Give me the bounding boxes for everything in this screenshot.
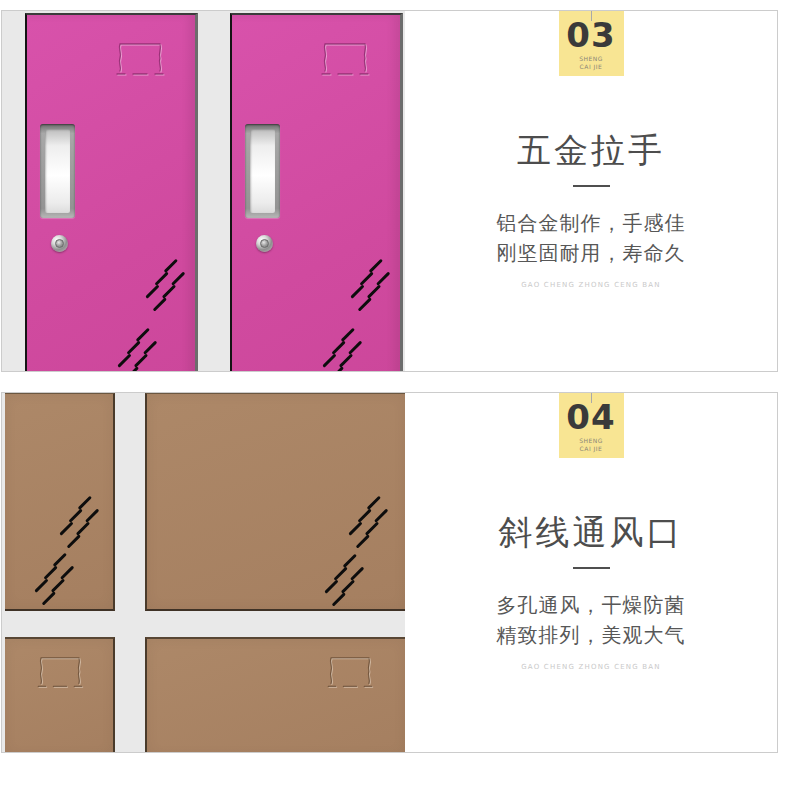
handle-inner-panel [250,129,275,213]
badge-number: 03 [566,18,615,52]
badge-hanger-line [591,11,592,21]
product-detail-page: 03 SHENG CAI JIE 五金拉手 铝合金制作，手感佳 刚坚固耐用，寿命… [0,0,790,800]
feature-text-column: 03 SHENG CAI JIE 五金拉手 铝合金制作，手感佳 刚坚固耐用，寿命… [405,11,777,371]
feature-card-hardware-handle: 03 SHENG CAI JIE 五金拉手 铝合金制作，手感佳 刚坚固耐用，寿命… [1,10,778,372]
feature-text-column: 04 SHENG CAI JIE 斜线通风口 多孔通风，干燥防菌 精致排列，美观… [405,393,777,752]
label-emboss-icon [111,41,169,79]
feature-description: 铝合金制作，手感佳 刚坚固耐用，寿命久 [497,208,686,268]
badge-brand-line2: CAI JIE [579,63,603,71]
diagonal-vents-icon [112,327,158,371]
diagonal-vents-icon [319,553,365,610]
recessed-handle [40,124,75,218]
pinyin-caption: GAO CHENG ZHONG CENG BAN [521,663,661,671]
badge-brand-line1: SHENG [579,55,603,63]
badge-brand-text: SHENG CAI JIE [579,55,603,71]
brown-lockers-photo [2,393,405,752]
cam-lock-icon [256,235,273,252]
recessed-handle [245,124,280,218]
description-line: 刚坚固耐用，寿命久 [497,238,686,268]
feature-title: 斜线通风口 [499,514,684,550]
diagonal-vents-icon [54,495,100,552]
number-badge: 03 SHENG CAI JIE [559,11,624,76]
feature-title: 五金拉手 [517,132,665,168]
badge-brand-line2: CAI JIE [579,445,603,453]
badge-brand-text: SHENG CAI JIE [579,437,603,453]
diagonal-vents-icon [343,495,389,552]
title-divider [573,185,610,187]
description-line: 精致排列，美观大气 [497,620,686,650]
feature-card-diagonal-vents: 04 SHENG CAI JIE 斜线通风口 多孔通风，干燥防菌 精致排列，美观… [1,392,778,753]
label-emboss-icon [32,655,88,691]
diagonal-vents-icon [29,552,75,609]
lock-core [260,239,269,248]
handle-inner-panel [45,129,70,213]
lock-core [55,239,64,248]
diagonal-vents-icon [345,258,391,315]
label-emboss-icon [322,655,378,691]
badge-hanger-line [591,393,592,403]
cam-lock-icon [51,235,68,252]
pink-lockers-photo [2,11,405,371]
description-line: 多孔通风，干燥防菌 [497,590,686,620]
number-badge: 04 SHENG CAI JIE [559,393,624,458]
description-line: 铝合金制作，手感佳 [497,208,686,238]
feature-description: 多孔通风，干燥防菌 精致排列，美观大气 [497,590,686,650]
title-divider [573,567,610,569]
pinyin-caption: GAO CHENG ZHONG CENG BAN [521,281,661,289]
diagonal-vents-icon [140,258,186,315]
badge-brand-line1: SHENG [579,437,603,445]
diagonal-vents-icon [317,327,363,371]
label-emboss-icon [316,41,374,79]
badge-number: 04 [566,400,615,434]
